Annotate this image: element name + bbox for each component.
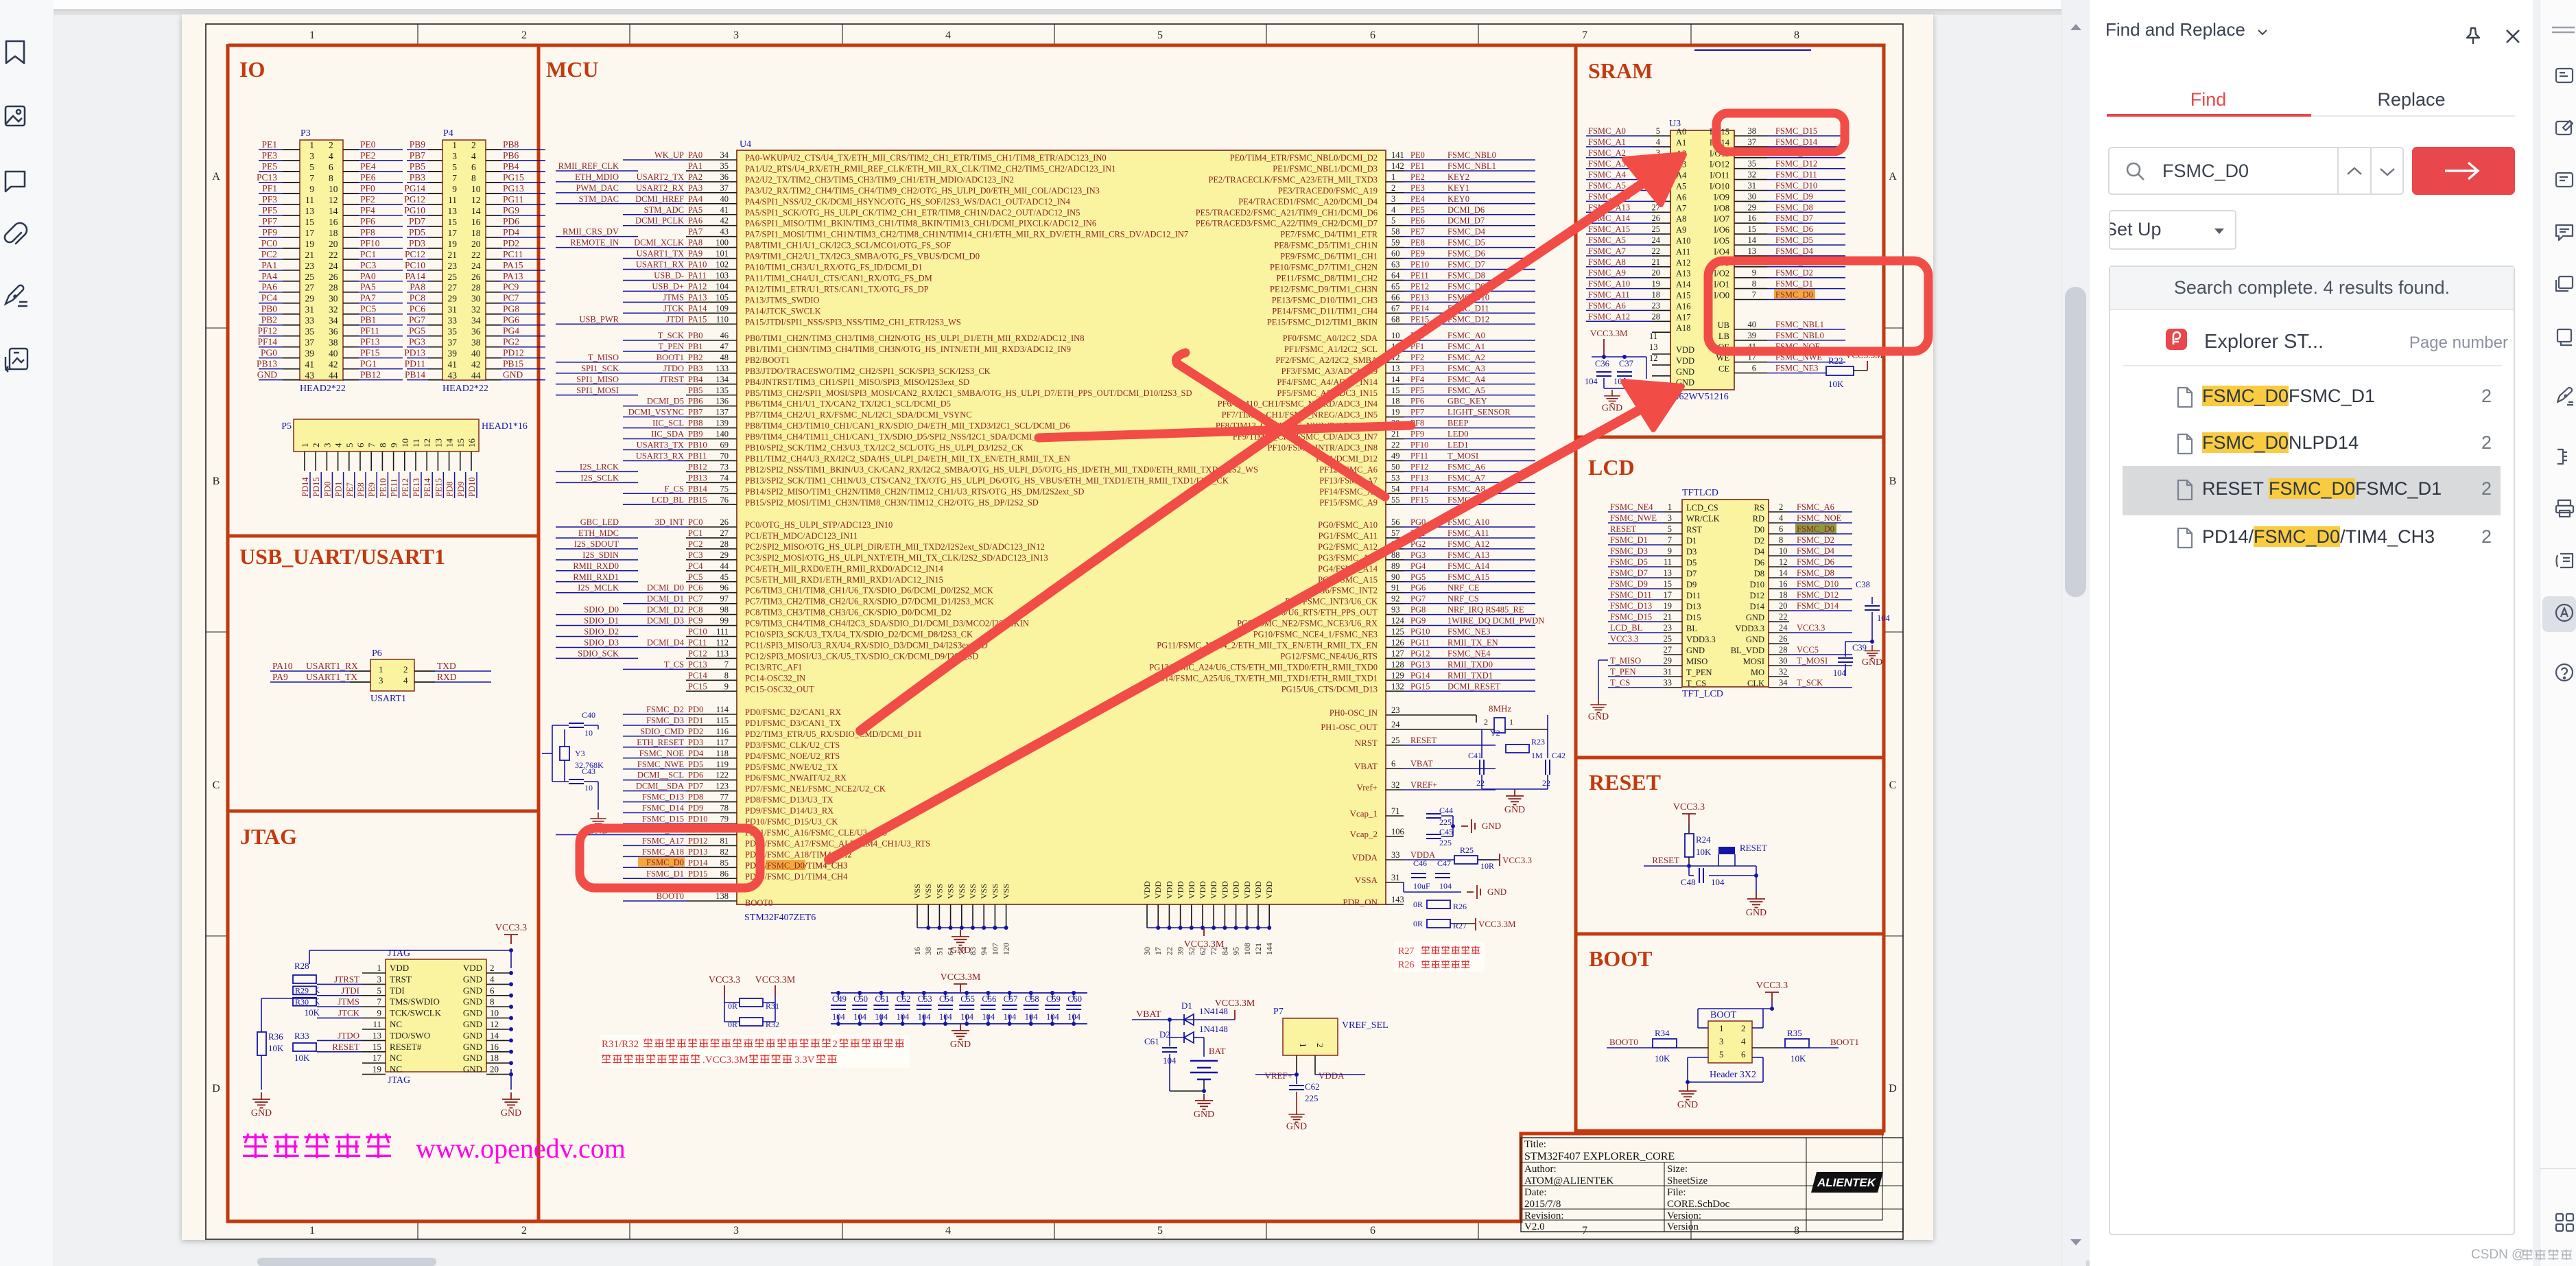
svg-text:PA15: PA15 <box>688 314 707 324</box>
svg-text:FSMC_A12: FSMC_A12 <box>1447 539 1489 549</box>
svg-text:18: 18 <box>1779 590 1788 600</box>
svg-text:32: 32 <box>1779 667 1788 677</box>
svg-text:41: 41 <box>448 360 458 370</box>
svg-text:18: 18 <box>329 228 338 238</box>
svg-text:FSMC_A6: FSMC_A6 <box>1588 301 1626 310</box>
svg-text:GND: GND <box>1677 1100 1698 1110</box>
svg-text:37: 37 <box>1748 137 1757 147</box>
svg-text:13: 13 <box>305 206 315 216</box>
svg-text:C61: C61 <box>1144 1036 1159 1046</box>
svg-text:PC3: PC3 <box>360 260 377 270</box>
svg-text:FSMC_D8: FSMC_D8 <box>1447 270 1485 280</box>
svg-text:43: 43 <box>448 371 458 381</box>
svg-text:11: 11 <box>1664 557 1672 567</box>
svg-text:89: 89 <box>1391 561 1400 571</box>
svg-text:VREF+: VREF+ <box>1410 780 1437 790</box>
svg-text:119: 119 <box>716 760 729 769</box>
svg-text:FSMC_D5: FSMC_D5 <box>1447 238 1485 248</box>
svg-text:T_PEN: T_PEN <box>659 342 685 351</box>
svg-text:10: 10 <box>329 184 338 194</box>
svg-text:C42: C42 <box>1552 751 1565 760</box>
svg-text:NRST: NRST <box>1355 738 1378 748</box>
svg-text:R36: R36 <box>268 1031 283 1042</box>
svg-text:USART1_TX: USART1_TX <box>306 672 357 682</box>
svg-text:A10: A10 <box>1676 236 1691 246</box>
svg-text:FSMC_D13: FSMC_D13 <box>1610 601 1652 611</box>
svg-text:PC0: PC0 <box>261 238 278 248</box>
svg-text:PD7: PD7 <box>409 216 425 226</box>
svg-text:I/O1: I/O1 <box>1714 280 1729 290</box>
svg-text:PE8/FSMC_D5/TIM1_CH1N: PE8/FSMC_D5/TIM1_CH1N <box>1274 241 1378 250</box>
svg-text:111: 111 <box>716 627 729 637</box>
svg-text:PG1/FSMC_A11: PG1/FSMC_A11 <box>1319 531 1378 541</box>
svg-text:2: 2 <box>1391 183 1395 193</box>
svg-text:MISO: MISO <box>1686 657 1708 666</box>
svg-text:PE10: PE10 <box>378 478 388 497</box>
svg-text:1: 1 <box>377 963 382 973</box>
svg-text:PB8/TIM4_CH3/TIM10_CH1/CAN1_RX: PB8/TIM4_CH3/TIM10_CH1/CAN1_RX/SDIO_D4/E… <box>745 421 1070 431</box>
svg-text:PB7: PB7 <box>410 150 426 161</box>
svg-text:28: 28 <box>720 539 729 549</box>
svg-text:PD5: PD5 <box>409 227 425 237</box>
svg-text:PG8: PG8 <box>1410 605 1426 615</box>
svg-text:Vref+: Vref+ <box>1357 782 1378 793</box>
svg-text:92: 92 <box>1391 594 1400 604</box>
svg-text:104: 104 <box>1877 613 1891 623</box>
svg-text:24: 24 <box>329 261 338 271</box>
svg-text:FSMC_D0: FSMC_D0 <box>1775 290 1813 300</box>
svg-text:PD4/FSMC_NOE/U2_RTS: PD4/FSMC_NOE/U2_RTS <box>745 751 840 761</box>
svg-text:35: 35 <box>305 327 315 337</box>
svg-text:141: 141 <box>1391 150 1404 160</box>
svg-text:PC4/ETH_MII_RXD0/ETH_RMII_RXD0: PC4/ETH_MII_RXD0/ETH_RMII_RXD0/ADC12_IN1… <box>745 564 944 574</box>
svg-text:PC8/TIM3_CH3/TIM8_CH3/U6_CK/SD: PC8/TIM3_CH3/TIM8_CH3/U6_CK/SDIO_D0/DCMI… <box>745 608 952 618</box>
svg-text:ETH_RESET: ETH_RESET <box>637 738 684 747</box>
svg-text:PA14/JTCK_SWCLK: PA14/JTCK_SWCLK <box>745 306 821 316</box>
svg-text:11: 11 <box>411 438 421 447</box>
svg-text:4: 4 <box>403 675 408 685</box>
svg-text:8: 8 <box>724 670 729 680</box>
svg-text:36: 36 <box>720 172 729 182</box>
svg-text:44: 44 <box>720 561 729 571</box>
svg-text:13: 13 <box>373 1030 381 1040</box>
svg-text:8: 8 <box>1779 535 1783 545</box>
svg-text:21: 21 <box>1664 612 1673 622</box>
svg-text:12: 12 <box>471 195 481 205</box>
svg-text:PE6: PE6 <box>360 172 376 183</box>
svg-text:VDD3.3: VDD3.3 <box>1686 635 1716 644</box>
svg-text:58: 58 <box>1391 227 1400 237</box>
svg-text:75: 75 <box>720 484 729 493</box>
svg-text:PE2: PE2 <box>1410 172 1425 182</box>
svg-text:TFT_LCD: TFT_LCD <box>1682 689 1723 699</box>
svg-text:VSS: VSS <box>979 884 989 899</box>
svg-text:64: 64 <box>1391 270 1400 280</box>
svg-text:PD11: PD11 <box>405 359 425 369</box>
svg-text:FSMC_A8: FSMC_A8 <box>1447 484 1485 493</box>
svg-text:PB0: PB0 <box>261 304 278 314</box>
svg-text:0R: 0R <box>728 1020 737 1029</box>
svg-text:T_CS: T_CS <box>664 659 684 669</box>
svg-text:PE12: PE12 <box>1410 281 1429 291</box>
svg-text:70: 70 <box>720 451 729 460</box>
svg-text:PA7: PA7 <box>688 227 702 237</box>
svg-text:T_MISO: T_MISO <box>588 353 619 362</box>
svg-text:PA12/TIM1_ETR/U1_RTS/CAN1_TX/O: PA12/TIM1_ETR/U1_RTS/CAN1_TX/OTG_FS_DP <box>745 284 929 294</box>
svg-text:PE9/FSMC_D6/TIM1_CH1: PE9/FSMC_D6/TIM1_CH1 <box>1280 252 1378 261</box>
svg-text:37: 37 <box>448 338 458 348</box>
svg-text:PD14: PD14 <box>688 858 708 867</box>
svg-text:GND: GND <box>1862 657 1882 668</box>
svg-text:PG13: PG13 <box>503 183 524 194</box>
svg-text:PB1/TIM1_CH3N/TIM3_CH4/TIM8_CH: PB1/TIM1_CH3N/TIM3_CH4/TIM8_CH3N/OTG_HS_… <box>745 344 1071 354</box>
svg-text:PA15: PA15 <box>503 260 523 270</box>
svg-text:VCC3.3: VCC3.3 <box>1673 802 1705 812</box>
svg-text:1: 1 <box>300 443 310 448</box>
svg-text:VCC3.3: VCC3.3 <box>1610 634 1638 644</box>
svg-text:PE9: PE9 <box>367 482 377 497</box>
svg-text:PE0: PE0 <box>1410 150 1425 160</box>
svg-text:41: 41 <box>720 205 729 215</box>
svg-text:56: 56 <box>1391 517 1400 527</box>
svg-text:68: 68 <box>1391 314 1400 324</box>
svg-text:PF2/FSMC_A2/I2C2_SMBA: PF2/FSMC_A2/I2C2_SMBA <box>1275 355 1378 365</box>
svg-text:FSMC_D7: FSMC_D7 <box>1447 260 1485 270</box>
svg-text:PD3: PD3 <box>409 238 425 248</box>
svg-text:Author:: Author: <box>1524 1164 1557 1175</box>
svg-text:SDIO_CMD: SDIO_CMD <box>640 727 684 736</box>
svg-text:C: C <box>213 779 220 791</box>
svg-text:44: 44 <box>471 371 481 381</box>
svg-text:C43: C43 <box>582 766 595 776</box>
svg-text:FSMC_D4: FSMC_D4 <box>1797 546 1835 556</box>
svg-text:14: 14 <box>490 1030 499 1040</box>
svg-text:A: A <box>1889 171 1897 183</box>
svg-text:PB12/SPI2_NSS/TIM1_BKIN/U3_CK/: PB12/SPI2_NSS/TIM1_BKIN/U3_CK/CAN2_RX/I2… <box>745 465 1258 474</box>
svg-text:IO: IO <box>239 57 265 82</box>
svg-text:5: 5 <box>1656 126 1660 136</box>
svg-text:.VCC3.3M: .VCC3.3M <box>702 1055 748 1066</box>
svg-text:12: 12 <box>1779 557 1788 567</box>
svg-text:PA6: PA6 <box>261 282 277 292</box>
svg-text:MCU: MCU <box>546 57 598 82</box>
svg-text:PF6: PF6 <box>1410 397 1424 406</box>
svg-text:C40: C40 <box>582 710 595 720</box>
svg-text:3: 3 <box>379 675 383 685</box>
svg-text:FSMC_A0: FSMC_A0 <box>1588 126 1626 136</box>
svg-text:PA9: PA9 <box>272 672 288 682</box>
svg-text:9: 9 <box>377 1008 382 1018</box>
svg-text:PD8/FSMC_D13/U3_TX: PD8/FSMC_D13/U3_TX <box>745 795 834 805</box>
svg-text:29: 29 <box>448 294 458 304</box>
svg-text:JTRST: JTRST <box>660 375 685 384</box>
svg-text:VBAT: VBAT <box>1410 759 1433 769</box>
svg-text:6: 6 <box>1370 1225 1375 1236</box>
svg-text:A15: A15 <box>1676 291 1691 301</box>
svg-text:FSMC_A17: FSMC_A17 <box>642 836 684 845</box>
svg-text:1: 1 <box>309 30 315 41</box>
svg-text:RESET: RESET <box>1740 843 1767 853</box>
svg-text:90: 90 <box>1391 572 1400 582</box>
svg-text:8: 8 <box>377 443 388 448</box>
svg-text:PF12: PF12 <box>1410 462 1428 471</box>
svg-text:P5: P5 <box>281 421 292 432</box>
svg-text:PA6/SPI1_MISO/TIM1_BKIN/TIM3_C: PA6/SPI1_MISO/TIM1_BKIN/TIM3_CH1/TIM8_BK… <box>745 219 1096 228</box>
svg-text:PE7: PE7 <box>1410 227 1425 237</box>
svg-text:3: 3 <box>1719 1036 1724 1046</box>
svg-text:I/O0: I/O0 <box>1714 291 1729 301</box>
svg-text:34: 34 <box>720 150 729 160</box>
svg-text:PG6: PG6 <box>1410 583 1426 593</box>
svg-text:PE2: PE2 <box>360 150 376 161</box>
svg-text:DCMI_D1: DCMI_D1 <box>647 594 684 604</box>
svg-text:ETH_MDC: ETH_MDC <box>578 528 619 538</box>
svg-text:13: 13 <box>1664 568 1673 578</box>
svg-text:PA13/JTMS_SWDIO: PA13/JTMS_SWDIO <box>745 295 820 305</box>
svg-text:PD0: PD0 <box>322 482 332 497</box>
svg-text:CLK: CLK <box>1747 679 1764 688</box>
svg-text:20: 20 <box>329 239 338 249</box>
svg-text:PE13: PE13 <box>1410 292 1429 302</box>
svg-text:PC11/SPI3_MISO/U3_RX/U4_RX/SDI: PC11/SPI3_MISO/U3_RX/U4_RX/SDIO_D3/DCMI_… <box>745 640 988 650</box>
svg-text:VSS: VSS <box>968 884 978 899</box>
svg-text:Version: Version <box>1667 1221 1699 1232</box>
svg-text:PG15: PG15 <box>503 172 524 183</box>
svg-text:PB1: PB1 <box>360 315 376 325</box>
svg-text:PG7: PG7 <box>409 315 425 325</box>
svg-text:GND: GND <box>463 1008 482 1018</box>
svg-text:22: 22 <box>1476 778 1485 788</box>
svg-text:BEEP: BEEP <box>1447 419 1469 428</box>
svg-text:RS: RS <box>1754 503 1764 513</box>
svg-text:I2S_SDIN: I2S_SDIN <box>582 550 619 560</box>
svg-text:C58: C58 <box>1025 994 1039 1004</box>
svg-text:3: 3 <box>1391 194 1395 204</box>
svg-text:123: 123 <box>716 782 729 791</box>
svg-text:USART2_RX: USART2_RX <box>636 183 684 193</box>
svg-text:PA9: PA9 <box>688 249 702 259</box>
svg-text:26: 26 <box>329 272 338 282</box>
svg-text:2: 2 <box>329 140 333 150</box>
svg-text:PB3: PB3 <box>688 364 703 373</box>
svg-text:34: 34 <box>471 316 481 326</box>
svg-text:PG3: PG3 <box>1410 550 1426 560</box>
svg-text:18: 18 <box>1652 290 1661 300</box>
svg-text:C36: C36 <box>1595 359 1609 368</box>
svg-text:BOOT0: BOOT0 <box>745 898 772 908</box>
svg-text:122: 122 <box>716 771 729 780</box>
svg-text:120: 120 <box>1002 943 1011 955</box>
svg-text:R35: R35 <box>1787 1028 1802 1038</box>
svg-text:D10: D10 <box>1749 580 1764 589</box>
svg-text:FSMC_A1: FSMC_A1 <box>1447 342 1485 351</box>
svg-text:I2S_SCLK: I2S_SCLK <box>580 473 619 482</box>
svg-text:24: 24 <box>1652 235 1661 245</box>
svg-text:139: 139 <box>716 419 729 428</box>
svg-text:17: 17 <box>1153 947 1163 955</box>
svg-text:FSMC_D8: FSMC_D8 <box>1775 202 1813 212</box>
svg-text:PE5: PE5 <box>1410 205 1425 215</box>
svg-text:37: 37 <box>305 338 315 348</box>
svg-text:I/O12: I/O12 <box>1710 160 1729 169</box>
svg-text:4: 4 <box>1391 205 1396 215</box>
svg-text:JTDO: JTDO <box>663 364 684 373</box>
svg-text:D1: D1 <box>1181 1000 1192 1011</box>
svg-text:29: 29 <box>1748 202 1757 212</box>
svg-text:PA3: PA3 <box>688 183 702 193</box>
svg-text:9: 9 <box>1752 268 1756 278</box>
svg-text:PG6: PG6 <box>503 315 519 325</box>
svg-text:PG14/FSMC_A25/U6_TX/ETH_MII_TX: PG14/FSMC_A25/U6_TX/ETH_MII_TXD1/ETH_RMI… <box>1154 673 1378 683</box>
svg-text:93: 93 <box>1391 605 1400 615</box>
svg-text:C49: C49 <box>832 994 847 1004</box>
svg-text:17: 17 <box>448 228 458 238</box>
svg-text:13: 13 <box>1649 342 1658 352</box>
svg-text:I/O5: I/O5 <box>1714 236 1729 246</box>
svg-text:PB13: PB13 <box>688 473 707 482</box>
svg-text:R26: R26 <box>1398 960 1414 970</box>
svg-text:I/O8: I/O8 <box>1714 203 1729 213</box>
svg-text:PF10: PF10 <box>1410 441 1428 450</box>
svg-text:D2: D2 <box>1754 536 1764 546</box>
svg-text:GND: GND <box>463 1042 482 1052</box>
svg-text:PB1: PB1 <box>688 342 703 351</box>
svg-text:100: 100 <box>716 238 729 248</box>
svg-text:RMII_TXD0: RMII_TXD0 <box>1447 659 1493 669</box>
svg-text:5: 5 <box>1719 1049 1724 1059</box>
svg-text:PA11: PA11 <box>688 270 707 280</box>
svg-text:A6: A6 <box>1676 192 1686 202</box>
svg-text:31: 31 <box>448 305 458 315</box>
svg-text:D7: D7 <box>1686 569 1697 578</box>
svg-text:2015/7/8: 2015/7/8 <box>1524 1199 1561 1210</box>
svg-text:32: 32 <box>1391 780 1400 790</box>
svg-text:19: 19 <box>1652 279 1661 289</box>
svg-text:RMII_TXD1: RMII_TXD1 <box>1447 670 1493 680</box>
svg-text:13: 13 <box>433 438 443 447</box>
svg-text:7: 7 <box>309 173 314 183</box>
svg-text:51: 51 <box>934 947 944 955</box>
svg-text:12: 12 <box>422 438 432 447</box>
svg-text:22: 22 <box>1779 612 1788 622</box>
svg-text:PD1/FSMC_D3/CAN1_TX: PD1/FSMC_D3/CAN1_TX <box>745 718 841 728</box>
svg-text:134: 134 <box>716 375 729 384</box>
svg-text:V2.0: V2.0 <box>1524 1221 1545 1232</box>
svg-text:FSMC_A7: FSMC_A7 <box>1447 473 1485 482</box>
svg-text:22: 22 <box>1164 947 1174 955</box>
svg-text:REMOTE_IN: REMOTE_IN <box>570 238 619 248</box>
svg-text:PC3/SPI2_MOSI/OTG_HS_ULPI_NXT/: PC3/SPI2_MOSI/OTG_HS_ULPI_NXT/ETH_MII_TX… <box>745 553 1048 563</box>
svg-text:PB12: PB12 <box>688 462 707 471</box>
svg-text:2: 2 <box>403 664 408 675</box>
svg-text:PE14: PE14 <box>1410 303 1430 313</box>
svg-text:PD1: PD1 <box>334 482 344 497</box>
svg-text:PF0: PF0 <box>360 183 375 194</box>
svg-text:LIGHT_SENSOR: LIGHT_SENSOR <box>1447 408 1511 417</box>
svg-text:PF4: PF4 <box>360 205 375 215</box>
svg-text:D9: D9 <box>1686 580 1697 589</box>
svg-text:77: 77 <box>720 793 729 802</box>
svg-text:30: 30 <box>471 294 481 304</box>
svg-text:PF13: PF13 <box>360 337 380 347</box>
svg-text:Revision:: Revision: <box>1524 1210 1564 1221</box>
svg-text:PD15: PD15 <box>688 869 707 878</box>
svg-text:PF1: PF1 <box>262 183 277 194</box>
svg-text:FSMC_NE4: FSMC_NE4 <box>1447 648 1491 658</box>
svg-text:15: 15 <box>1748 224 1757 234</box>
svg-text:PC10: PC10 <box>688 627 707 637</box>
svg-text:FSMC_D1: FSMC_D1 <box>1610 535 1648 545</box>
svg-text:PA14: PA14 <box>405 271 425 281</box>
svg-text:PC9: PC9 <box>503 282 519 292</box>
svg-text:4: 4 <box>1656 137 1661 147</box>
svg-text:24: 24 <box>471 261 481 271</box>
svg-text:PC7: PC7 <box>688 594 703 604</box>
svg-text:USB_UART/USART1: USB_UART/USART1 <box>239 544 445 569</box>
svg-text:RMII_CRS_DV: RMII_CRS_DV <box>563 227 619 237</box>
svg-text:PE2/TRACECLK/FSMC_A23/ETH_MII_: PE2/TRACECLK/FSMC_A23/ETH_MII_TXD3 <box>1208 175 1378 185</box>
svg-text:PA15/JTDI/SPI1_NSS/SPI3_NSS/TI: PA15/JTDI/SPI1_NSS/SPI3_NSS/TIM2_CH1_ETR… <box>745 317 961 327</box>
svg-text:DCMI_D3: DCMI_D3 <box>647 616 684 626</box>
svg-text:8MHz: 8MHz <box>1489 703 1511 714</box>
svg-text:86: 86 <box>720 869 729 878</box>
svg-text:46: 46 <box>720 331 729 340</box>
svg-text:JTDI: JTDI <box>666 314 684 324</box>
svg-text:SRAM: SRAM <box>1588 58 1653 83</box>
svg-text:PH1-OSC_OUT: PH1-OSC_OUT <box>1321 723 1378 732</box>
svg-text:USB_D+: USB_D+ <box>652 281 684 291</box>
svg-text:PD12/FSMC_A17/FSMC_ALE/TIM4_CH: PD12/FSMC_A17/FSMC_ALE/TIM4_CH1/U3_RTS <box>745 839 930 848</box>
svg-text:C: C <box>1889 779 1897 791</box>
svg-text:PE3: PE3 <box>1410 183 1425 193</box>
svg-text:PC15-OSC32_OUT: PC15-OSC32_OUT <box>745 684 814 694</box>
svg-text:PE15/FSMC_D12/TIM1_BKIN: PE15/FSMC_D12/TIM1_BKIN <box>1267 317 1378 327</box>
svg-text:PB14: PB14 <box>405 370 425 380</box>
svg-text:ATOM@ALIENTEK: ATOM@ALIENTEK <box>1524 1175 1614 1186</box>
svg-text:VCC3.3M: VCC3.3M <box>1215 998 1255 1009</box>
svg-text:PC11: PC11 <box>688 637 707 647</box>
svg-text:STM32F407ZET6: STM32F407ZET6 <box>744 913 816 923</box>
svg-text:PE1: PE1 <box>261 139 277 150</box>
svg-text:PG12: PG12 <box>1410 648 1430 658</box>
svg-text:18: 18 <box>471 228 481 238</box>
svg-text:TFTLCD: TFTLCD <box>1682 488 1718 498</box>
svg-text:10K: 10K <box>1828 379 1844 389</box>
svg-text:FSMC_A4: FSMC_A4 <box>1588 170 1627 180</box>
svg-text:35: 35 <box>720 161 729 171</box>
svg-text:14: 14 <box>1391 375 1400 384</box>
svg-text:8: 8 <box>1752 279 1756 289</box>
svg-text:PA1/U2_RTS/U4_RX/ETH_RMII_REF_: PA1/U2_RTS/U4_RX/ETH_RMII_REF_CLK/ETH_MI… <box>745 164 1115 174</box>
svg-text:UB: UB <box>1718 320 1729 330</box>
svg-text:PA12: PA12 <box>688 281 707 291</box>
svg-text:I/O2: I/O2 <box>1714 269 1729 279</box>
svg-text:PE11/FSMC_D8/TIM1_CH2: PE11/FSMC_D8/TIM1_CH2 <box>1277 273 1378 283</box>
svg-text:VREF_SEL: VREF_SEL <box>1342 1020 1389 1031</box>
svg-text:38: 38 <box>1748 126 1757 136</box>
svg-text:0R: 0R <box>1413 900 1423 909</box>
svg-text:126: 126 <box>1391 637 1404 647</box>
svg-text:GND: GND <box>251 1108 272 1118</box>
svg-text:17: 17 <box>1664 590 1673 600</box>
svg-text:FSMC_D10: FSMC_D10 <box>1775 181 1817 191</box>
svg-text:USART1_RX: USART1_RX <box>636 260 684 270</box>
svg-text:FSMC_NWE: FSMC_NWE <box>637 760 684 769</box>
svg-text:11: 11 <box>448 195 457 205</box>
svg-text:96: 96 <box>720 583 729 593</box>
svg-text:FSMC_A6: FSMC_A6 <box>1447 462 1485 471</box>
svg-text:A12: A12 <box>1676 258 1691 268</box>
